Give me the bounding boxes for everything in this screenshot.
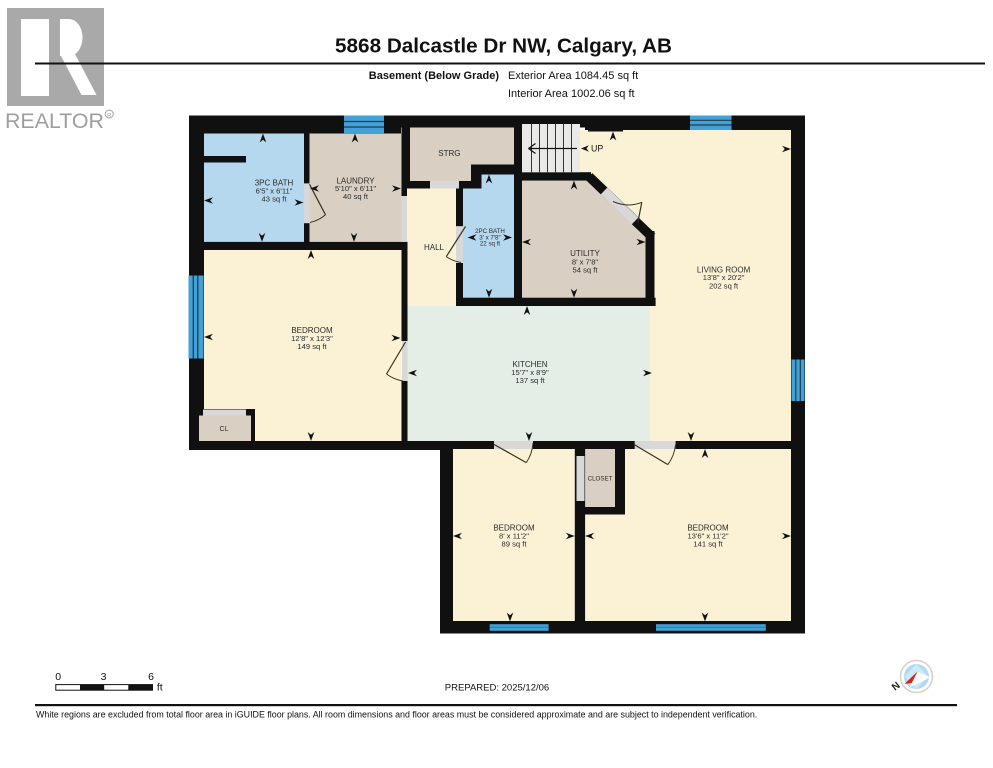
svg-text:CLOSET: CLOSET — [588, 476, 613, 483]
svg-text:89 sq ft: 89 sq ft — [502, 539, 528, 548]
svg-text:STRG: STRG — [438, 149, 460, 158]
svg-text:149 sq ft: 149 sq ft — [297, 342, 327, 351]
svg-text:REALTOR: REALTOR — [5, 109, 104, 133]
svg-text:CL: CL — [220, 426, 229, 433]
svg-text:54 sq ft: 54 sq ft — [573, 266, 599, 275]
svg-text:UP: UP — [591, 144, 603, 154]
svg-text:Basement (Below Grade): Basement (Below Grade) — [369, 70, 500, 82]
svg-text:ft: ft — [157, 682, 163, 694]
svg-text:HALL: HALL — [424, 243, 445, 252]
svg-text:White regions are excluded fro: White regions are excluded from total fl… — [36, 710, 757, 720]
svg-text:202 sq ft: 202 sq ft — [709, 282, 739, 291]
svg-text:0: 0 — [55, 671, 61, 683]
svg-text:R: R — [107, 113, 111, 119]
svg-text:137 sq ft: 137 sq ft — [515, 376, 545, 385]
svg-text:5868 Dalcastle Dr NW, Calgary,: 5868 Dalcastle Dr NW, Calgary, AB — [335, 35, 672, 58]
svg-text:43 sq ft: 43 sq ft — [262, 195, 288, 204]
svg-text:Exterior Area 1084.45 sq ft: Exterior Area 1084.45 sq ft — [508, 70, 638, 82]
svg-text:22 sq ft: 22 sq ft — [480, 241, 501, 248]
svg-text:PREPARED: 2025/12/06: PREPARED: 2025/12/06 — [445, 683, 549, 694]
svg-text:3: 3 — [101, 671, 107, 683]
svg-text:Interior Area 1002.06 sq ft: Interior Area 1002.06 sq ft — [508, 88, 635, 100]
svg-text:6: 6 — [148, 671, 154, 683]
svg-text:141 sq ft: 141 sq ft — [693, 539, 723, 548]
svg-text:40 sq ft: 40 sq ft — [343, 192, 369, 201]
